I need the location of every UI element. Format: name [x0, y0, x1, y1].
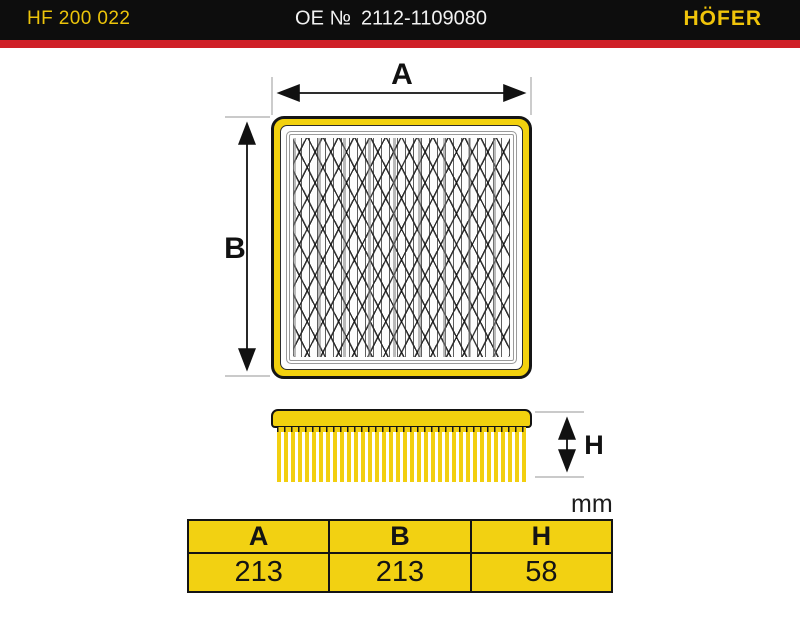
table-header-b: B: [330, 521, 471, 554]
table-header-a: A: [189, 521, 330, 554]
oe-label: OE №: [295, 8, 351, 31]
dim-h-label: H: [579, 430, 609, 461]
oe-number: OE № 2112-1109080: [295, 8, 487, 31]
part-code: HF 200 022: [27, 8, 130, 30]
drawing-area: A B H mm A B H 213 213 58: [0, 48, 800, 617]
filter-mesh-pattern: [293, 138, 510, 357]
header-bar: HF 200 022 OE № 2112-1109080 HÖFER: [0, 0, 800, 40]
dim-a-label: A: [387, 58, 417, 92]
filter-side-view-cap: [271, 409, 532, 428]
filter-side-view-pleats: [277, 427, 526, 482]
pleat-ticks: [277, 427, 526, 432]
dim-b-label: B: [220, 232, 250, 266]
table-value-b: 213: [330, 554, 471, 591]
table-values-row: 213 213 58: [189, 554, 611, 591]
table-header-h: H: [472, 521, 611, 554]
filter-inner-frame: [280, 125, 523, 370]
table-value-a: 213: [189, 554, 330, 591]
units-label: mm: [571, 490, 613, 519]
table-value-h: 58: [472, 554, 611, 591]
brand-logo: HÖFER: [684, 7, 763, 31]
filter-top-view: [271, 116, 532, 379]
filter-seal-frame: [286, 131, 517, 364]
dimensions-table: A B H 213 213 58: [187, 519, 613, 593]
spec-sheet-page: HF 200 022 OE № 2112-1109080 HÖFER: [0, 0, 800, 617]
table-header-row: A B H: [189, 521, 611, 554]
accent-stripe: [0, 40, 800, 48]
oe-value: 2112-1109080: [361, 8, 487, 31]
